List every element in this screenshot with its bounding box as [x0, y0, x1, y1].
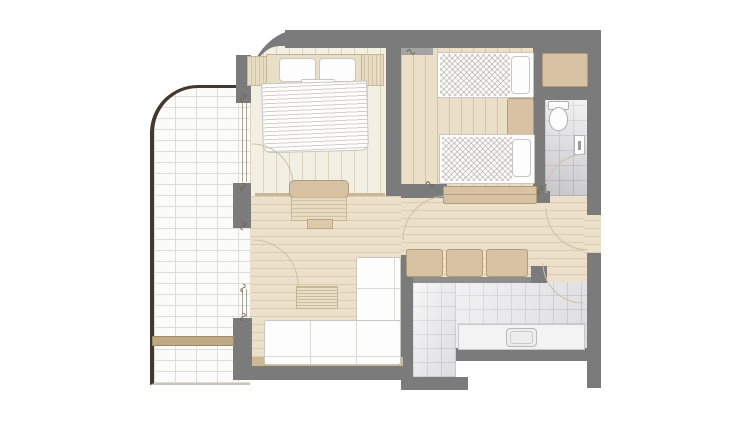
cabinet-2 [446, 249, 483, 277]
nightstand-between-beds [507, 98, 534, 136]
wardrobe [542, 53, 588, 87]
cabinet-1 [406, 249, 443, 277]
wall-between-bedrooms [386, 48, 401, 196]
wall-kitchen-door-stub [531, 266, 547, 283]
twin-bed-top-blanket [440, 54, 510, 96]
twin-room-sideboard [443, 186, 537, 204]
twin-bed-bottom-blanket [442, 137, 512, 181]
nightstand-left [247, 56, 267, 86]
wall-twin-bottom-left-stub [401, 184, 447, 198]
cabinet-3 [486, 249, 528, 277]
wall-dispenser-slot [578, 141, 581, 150]
coffee-table [296, 286, 338, 309]
twin-bed-top-pillow [511, 56, 530, 94]
toilet-bowl [549, 107, 568, 131]
wall-corridor-kitchen [413, 277, 540, 283]
wall-bathroom-bottom-stub [536, 191, 550, 203]
desk-console-top [289, 180, 349, 198]
double-bed-duvet [261, 81, 369, 154]
wall-bottom-kitchen-step [401, 377, 468, 390]
desk-console-body [291, 197, 347, 221]
kitchen-floor-strip [413, 282, 456, 377]
twin-bed-bottom-pillow [512, 139, 531, 177]
wall-top-step [400, 48, 433, 55]
wall-left-middle [233, 183, 251, 228]
entry-threshold [584, 215, 601, 253]
wall-bathroom-top [533, 88, 601, 100]
sofa-bottom-section [264, 320, 401, 365]
kitchen-sink-basin [510, 331, 533, 344]
balcony-bench [152, 336, 234, 346]
desk-stool [307, 219, 333, 229]
wall-top [285, 30, 601, 48]
wall-bottom-living [243, 364, 413, 380]
wall-right-lower [587, 253, 601, 388]
floor-plan [0, 0, 754, 435]
